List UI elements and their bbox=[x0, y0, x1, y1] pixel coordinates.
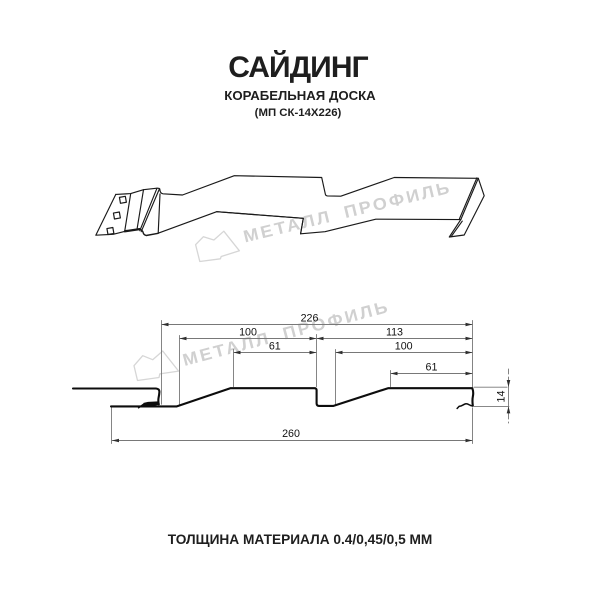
svg-text:100: 100 bbox=[239, 327, 257, 339]
svg-text:61: 61 bbox=[269, 340, 281, 352]
svg-text:14: 14 bbox=[496, 391, 508, 403]
svg-text:260: 260 bbox=[282, 428, 300, 440]
svg-text:100: 100 bbox=[395, 340, 413, 352]
svg-text:МЕТАЛЛ ПРОФИЛЬ: МЕТАЛЛ ПРОФИЛЬ bbox=[181, 296, 392, 369]
svg-text:226: 226 bbox=[301, 312, 319, 324]
svg-text:113: 113 bbox=[386, 327, 403, 339]
svg-text:61: 61 bbox=[426, 361, 438, 373]
svg-text:МЕТАЛЛ ПРОФИЛЬ: МЕТАЛЛ ПРОФИЛЬ bbox=[241, 177, 453, 246]
